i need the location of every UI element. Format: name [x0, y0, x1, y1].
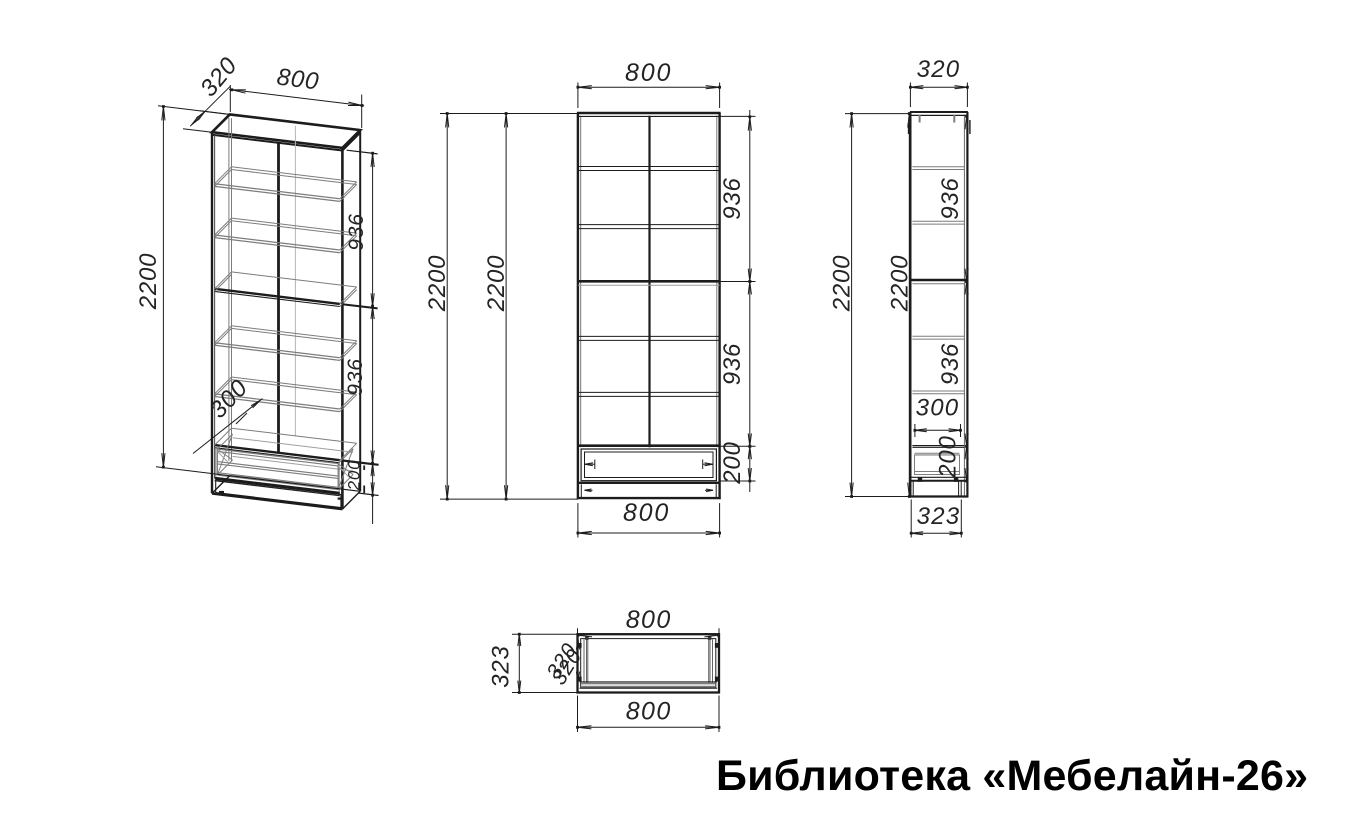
svg-text:936: 936 — [937, 343, 964, 385]
svg-text:2200: 2200 — [424, 255, 451, 313]
svg-text:800: 800 — [626, 697, 672, 725]
svg-text:323: 323 — [488, 645, 515, 687]
svg-text:323: 323 — [917, 503, 961, 530]
svg-text:936: 936 — [719, 343, 746, 385]
svg-text:320: 320 — [195, 52, 243, 102]
svg-text:936: 936 — [344, 358, 367, 395]
svg-text:800: 800 — [623, 499, 670, 527]
svg-text:2200: 2200 — [887, 255, 914, 313]
svg-text:320: 320 — [917, 56, 961, 83]
svg-text:2200: 2200 — [483, 255, 510, 313]
svg-text:936: 936 — [937, 177, 964, 219]
svg-text:936: 936 — [719, 177, 746, 219]
svg-text:800: 800 — [625, 59, 672, 87]
svg-text:200: 200 — [719, 441, 746, 484]
svg-text:2200: 2200 — [829, 255, 856, 313]
svg-text:300: 300 — [916, 395, 960, 422]
svg-text:200: 200 — [935, 435, 962, 478]
svg-text:200: 200 — [344, 460, 363, 492]
svg-text:936: 936 — [345, 213, 368, 250]
svg-text:800: 800 — [626, 606, 672, 634]
svg-text:800: 800 — [275, 64, 320, 96]
svg-text:2200: 2200 — [135, 253, 162, 311]
